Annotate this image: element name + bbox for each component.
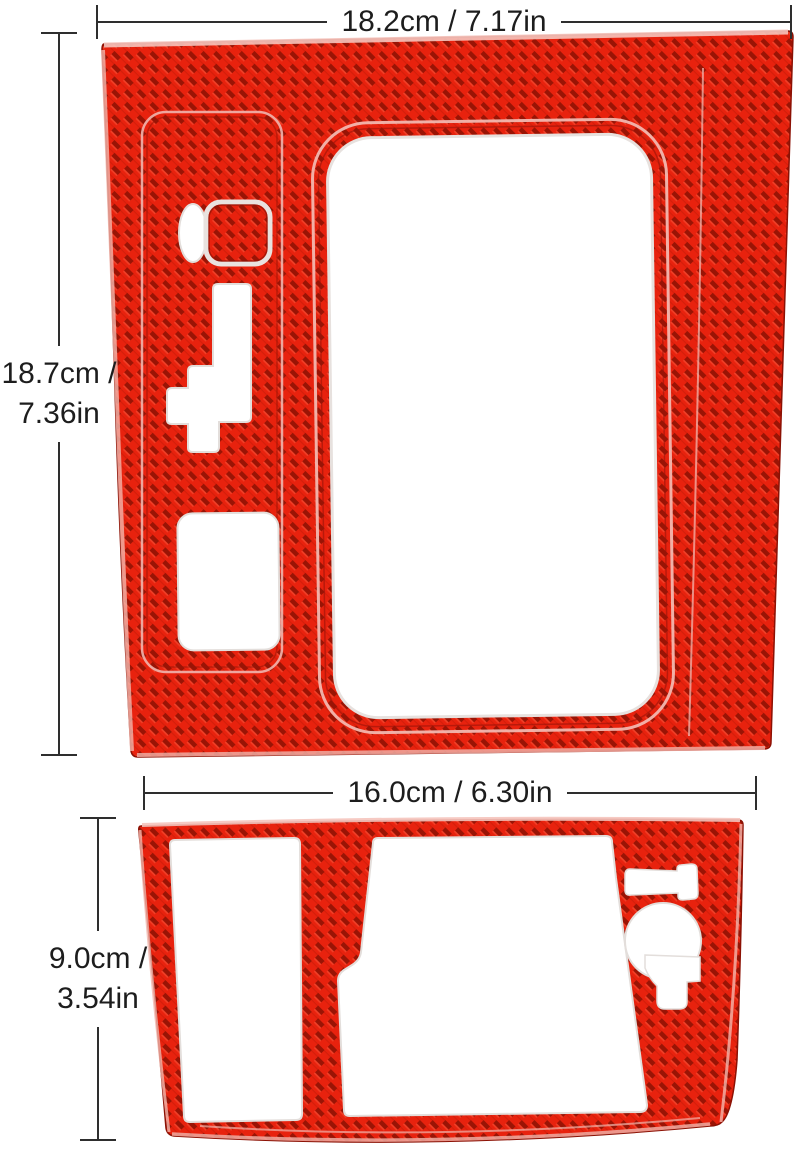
dimension-line [561,21,790,23]
dimension-bottom-panel-height: 9.0cm / 3.54in [38,817,158,1141]
dimension-label-line1: 18.7cm / [1,354,116,394]
dimension-line [58,34,60,346]
bottom-panel [139,819,743,1142]
top-panel [102,31,793,757]
dimension-label: 16.0cm / 6.30in [333,778,566,808]
center-slot-cutout [338,836,647,1116]
dimension-tick [80,1139,116,1141]
display-cutout [327,134,659,718]
lock-button-cutout [179,204,207,262]
dimension-label: 18.2cm / 7.17in [327,7,560,37]
dimension-label-line2: 7.36in [1,394,116,434]
dimension-line [567,792,755,794]
dimension-bottom-panel-width: 16.0cm / 6.30in [143,776,757,810]
dimension-label: 18.7cm / 7.36in [1,346,116,441]
dimension-label: 9.0cm / 3.54in [49,931,147,1026]
button-cutout [177,512,279,650]
dimension-line [97,1027,99,1139]
dimension-label-line2: 3.54in [49,979,147,1019]
dimension-top-panel-width: 18.2cm / 7.17in [96,5,792,39]
dimension-line [98,21,327,23]
dimension-top-panel-height: 18.7cm / 7.36in [0,32,118,756]
dimension-tick [41,754,77,756]
dimension-tick [790,5,792,39]
dimension-label-line1: 9.0cm / [49,939,147,979]
dimension-line [97,819,99,931]
product-image: 18.2cm / 7.17in 18.7cm / 7.36in 16.0cm /… [0,0,800,1164]
dimension-tick [755,776,757,810]
dimension-line [145,792,333,794]
dimension-line [58,442,60,754]
left-slot-cutout [170,838,302,1122]
